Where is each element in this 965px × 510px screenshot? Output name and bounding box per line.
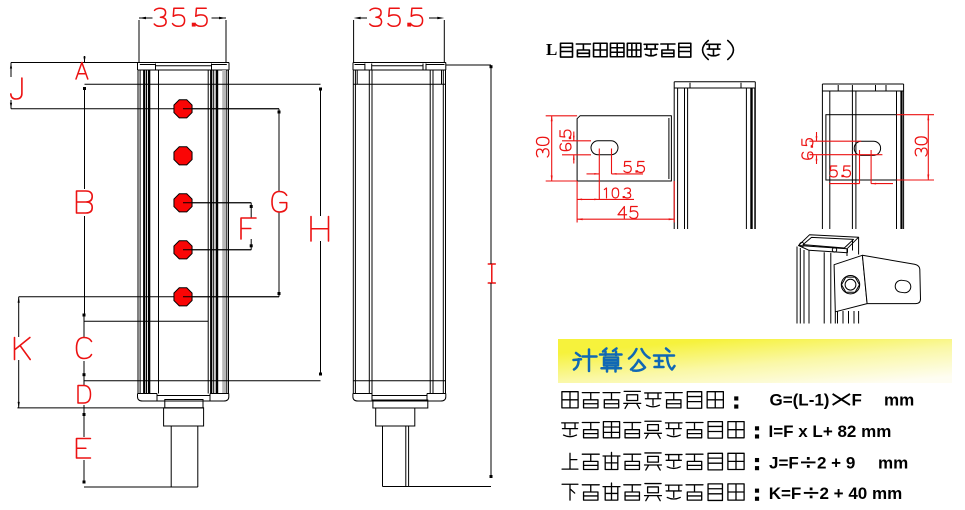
svg-text:2 + 9: 2 + 9 [817, 453, 855, 472]
svg-text:G=(L-1): G=(L-1) [770, 390, 830, 409]
svg-text:L: L [546, 40, 557, 59]
svg-text:F: F [852, 390, 862, 409]
svg-text:K=F: K=F [769, 484, 802, 503]
svg-text:2 + 40 mm: 2 + 40 mm [820, 484, 903, 503]
svg-text:mm: mm [878, 453, 908, 472]
svg-text:I=F x L+ 82 mm: I=F x L+ 82 mm [769, 422, 892, 441]
svg-text:mm: mm [884, 390, 914, 409]
svg-text:J=F: J=F [769, 453, 799, 472]
